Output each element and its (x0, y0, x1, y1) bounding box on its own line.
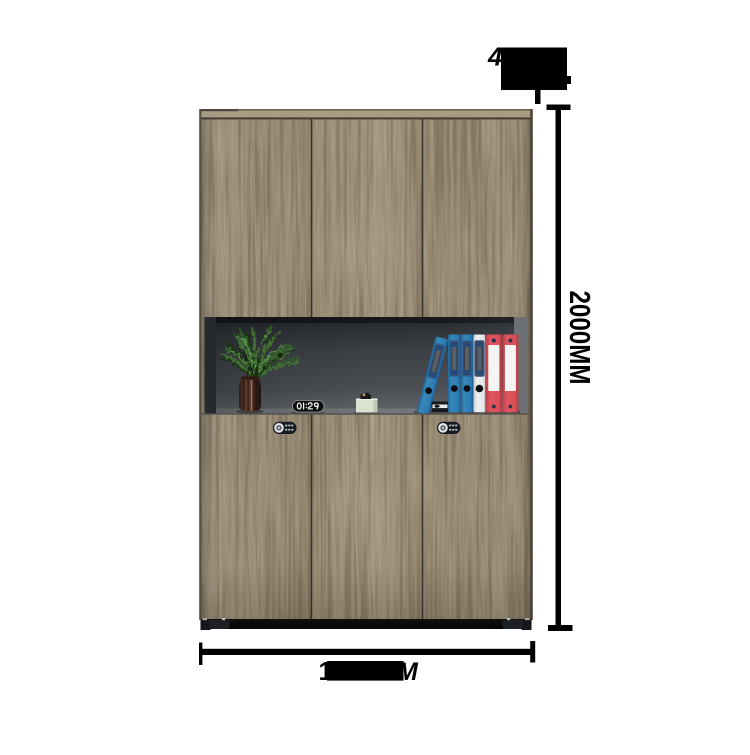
svg-text:4: 4 (487, 42, 503, 72)
svg-text:M: M (397, 658, 419, 686)
svg-text:2000MM: 2000MM (563, 291, 595, 385)
